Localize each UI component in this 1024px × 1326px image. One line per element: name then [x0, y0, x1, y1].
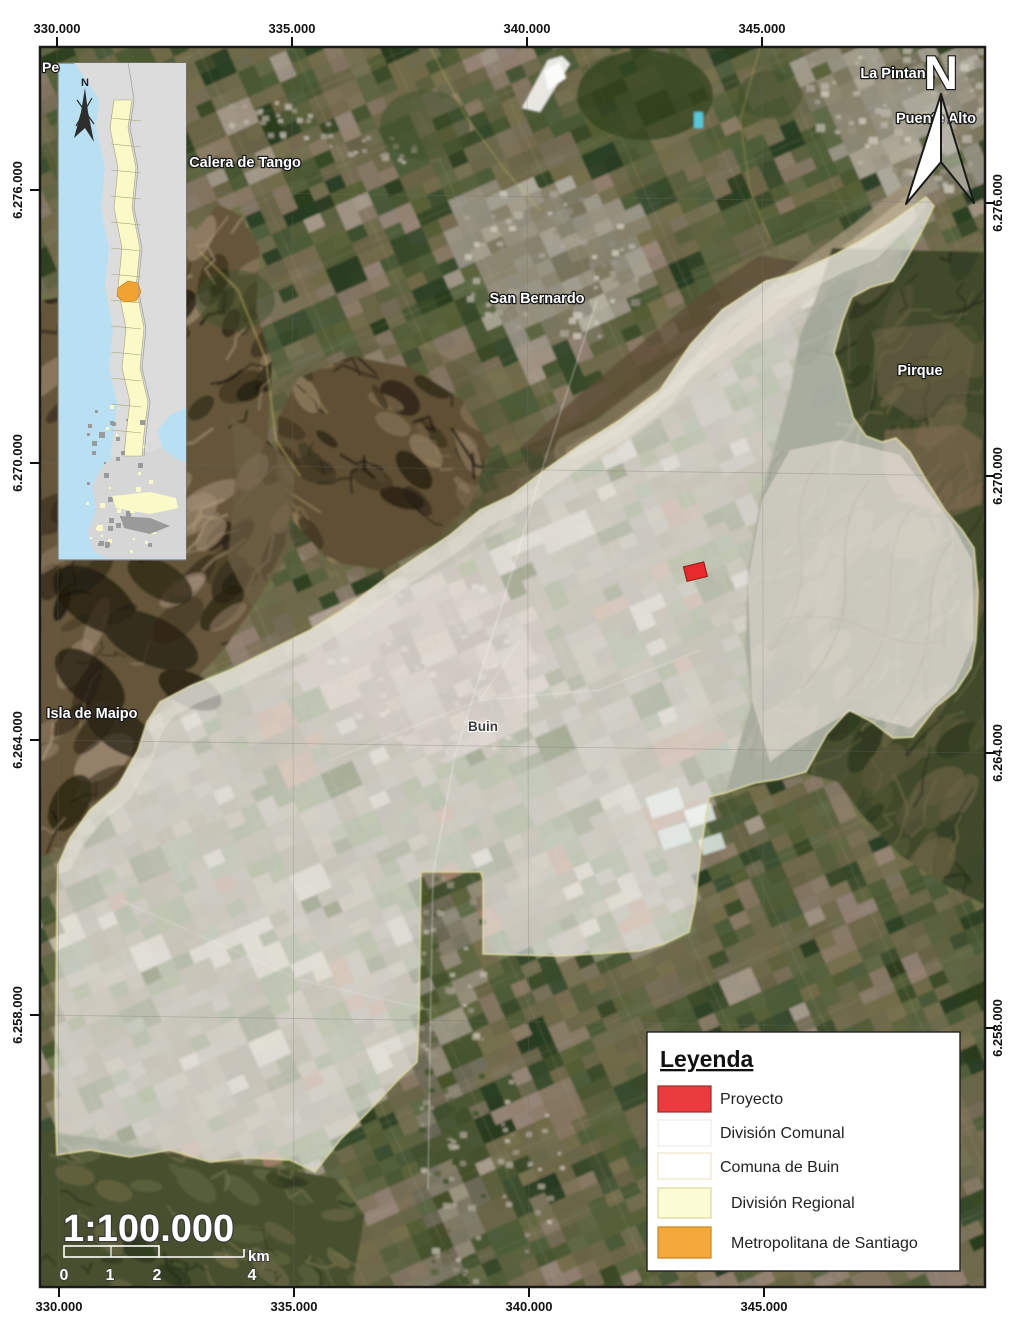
- svg-text:Proyecto: Proyecto: [720, 1091, 783, 1108]
- svg-text:2: 2: [153, 1267, 162, 1284]
- svg-text:Pe: Pe: [42, 59, 59, 75]
- svg-text:1: 1: [106, 1267, 115, 1284]
- svg-text:345.000: 345.000: [739, 21, 786, 36]
- svg-text:San Bernardo: San Bernardo: [489, 291, 584, 307]
- svg-text:335.000: 335.000: [269, 21, 316, 36]
- svg-text:6.258.000: 6.258.000: [990, 999, 1005, 1057]
- svg-text:335.000: 335.000: [271, 1299, 318, 1314]
- svg-text:División Regional: División Regional: [731, 1195, 855, 1212]
- svg-text:Isla de Maipo: Isla de Maipo: [46, 706, 137, 722]
- svg-text:330.000: 330.000: [34, 21, 81, 36]
- svg-text:Leyenda: Leyenda: [660, 1046, 754, 1072]
- svg-text:6.276.000: 6.276.000: [10, 161, 25, 219]
- svg-text:Comuna de Buin: Comuna de Buin: [720, 1159, 839, 1176]
- svg-text:0: 0: [60, 1267, 69, 1284]
- svg-text:6.264.000: 6.264.000: [990, 724, 1005, 782]
- svg-text:345.000: 345.000: [741, 1299, 788, 1314]
- svg-text:4: 4: [248, 1267, 257, 1284]
- svg-text:6.264.000: 6.264.000: [10, 711, 25, 769]
- svg-text:6.276.000: 6.276.000: [990, 174, 1005, 232]
- svg-text:Metropolitana de Santiago: Metropolitana de Santiago: [731, 1235, 918, 1252]
- svg-text:340.000: 340.000: [504, 21, 551, 36]
- svg-text:6.258.000: 6.258.000: [10, 986, 25, 1044]
- svg-text:km: km: [248, 1248, 270, 1265]
- svg-text:Buin: Buin: [468, 719, 498, 734]
- svg-text:N: N: [81, 77, 89, 89]
- svg-text:6.270.000: 6.270.000: [10, 434, 25, 492]
- svg-text:N: N: [924, 46, 958, 99]
- svg-text:340.000: 340.000: [506, 1299, 553, 1314]
- svg-text:Calera de Tango: Calera de Tango: [189, 155, 301, 171]
- svg-text:1:100.000: 1:100.000: [63, 1208, 234, 1250]
- svg-text:Pirque: Pirque: [897, 363, 942, 379]
- svg-text:División Comunal: División Comunal: [720, 1125, 845, 1142]
- svg-text:6.270.000: 6.270.000: [990, 447, 1005, 505]
- svg-text:330.000: 330.000: [36, 1299, 83, 1314]
